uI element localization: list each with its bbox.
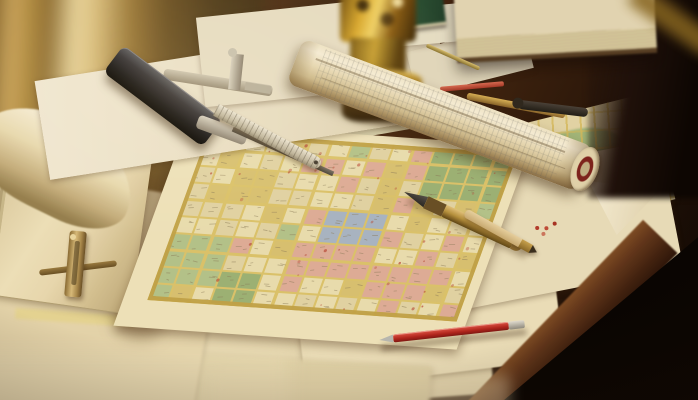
thick-book [453, 0, 657, 63]
foreground-blur [210, 376, 510, 400]
lamp-crown [340, 0, 416, 42]
clip-slot [71, 241, 80, 285]
red-pen-tip [379, 334, 394, 343]
screw-clamp-knob [228, 48, 237, 57]
compass-hinge [512, 97, 524, 109]
clip-screw [70, 234, 76, 240]
photo-canvas [0, 0, 698, 400]
red-survey-marks [535, 226, 540, 231]
